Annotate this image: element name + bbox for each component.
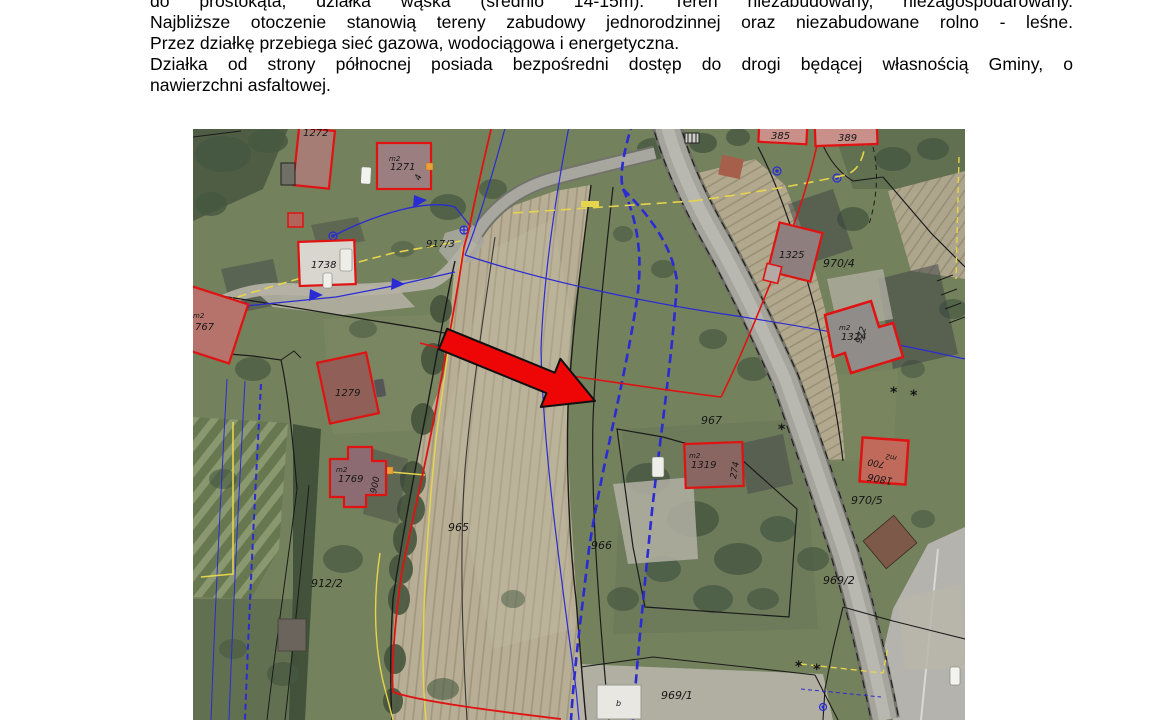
van <box>340 249 352 271</box>
paragraph-line: Przez działkę przebiega sieć gazowa, wod… <box>150 33 1073 54</box>
car <box>361 167 372 185</box>
building-small-red <box>288 213 303 227</box>
parcel-label-969-2: 969/2 <box>823 574 855 587</box>
area-label-m2: m2 <box>839 324 851 332</box>
building-label-1738: 1738 <box>311 260 336 271</box>
parcel-label-969-1: 969/1 <box>661 689 693 702</box>
svg-text:*: * <box>778 422 786 438</box>
building-label-1769: 1769 <box>338 474 363 485</box>
parcel-label-912-2: 912/2 <box>311 577 343 590</box>
building-1325-annex <box>763 263 782 283</box>
paragraph: do prostokąta, działka wąska (średnio 14… <box>150 0 1073 96</box>
paragraph-line: Najbliższe otoczenie stanowią tereny zab… <box>150 12 1073 33</box>
svg-text:*: * <box>795 659 803 675</box>
area-label-m2: m2 <box>389 155 401 163</box>
building-label-1325: 1325 <box>779 250 804 261</box>
parcel-label-970-4: 970/4 <box>823 257 855 270</box>
cadastral-map-image: ** ** * 965 966 967 912/2 969/1 969/2 97… <box>193 129 965 720</box>
building-label-1271: 1271 <box>390 162 415 173</box>
car <box>950 667 960 685</box>
building-label-389: 389 <box>838 133 857 144</box>
shed-small <box>278 619 306 651</box>
survey-marker-icon <box>426 163 433 170</box>
document-page: do prostokąta, działka wąska (średnio 14… <box>0 0 1160 720</box>
garage-label-b: b <box>616 699 621 708</box>
paragraph-line: Działka od strony północnej posiada bezp… <box>150 54 1073 75</box>
parcel-label-917-3: 917/3 <box>426 239 455 250</box>
area-label-m2: m2 <box>689 452 701 460</box>
parcel-label-965: 965 <box>448 521 469 534</box>
paragraph-line: do prostokąta, działka wąska (średnio 14… <box>150 0 1073 12</box>
parcel-label-966: 966 <box>591 539 612 552</box>
area-label-m2: m2 <box>193 312 205 320</box>
building-label-1279: 1279 <box>335 388 360 399</box>
svg-text:*: * <box>813 662 821 678</box>
cadastral-map: ** ** * 965 966 967 912/2 969/1 969/2 97… <box>193 129 965 720</box>
building-annex <box>281 163 295 185</box>
car <box>323 273 332 288</box>
culvert-icon <box>685 133 699 143</box>
building-label-767: 767 <box>195 322 215 333</box>
svg-text:*: * <box>910 388 918 404</box>
area-label-m2: m2 <box>336 466 348 474</box>
building-label-1272: 1272 <box>303 129 328 139</box>
building-label-385: 385 <box>771 131 790 142</box>
building-label-1319: 1319 <box>691 460 716 471</box>
svg-text:*: * <box>890 385 898 401</box>
paragraph-line: nawierzchni asfaltowej. <box>150 75 1073 96</box>
parcel-label-967: 967 <box>701 414 722 427</box>
van <box>652 457 664 477</box>
parcel-label-970-5: 970/5 <box>851 494 883 507</box>
